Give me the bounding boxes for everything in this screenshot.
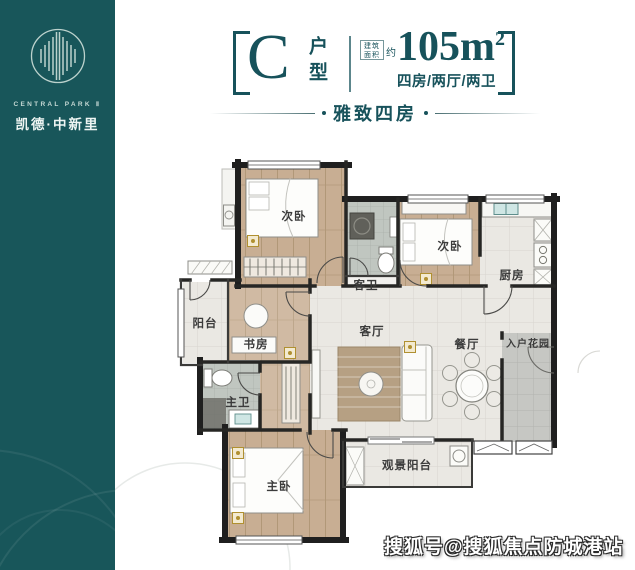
shower-master-bath [201, 398, 226, 428]
room-spec-label: 四房/两厅/两卫 [397, 70, 496, 91]
dressing-closet [282, 363, 300, 423]
subtitle-text: 雅致四房 [333, 100, 417, 126]
brand-logo [0, 26, 115, 91]
label-master-bedroom: 主卧 [267, 479, 292, 493]
unit-letter: C [247, 25, 290, 89]
living-rug [338, 347, 400, 421]
unit-type-label: 户型 [303, 36, 330, 88]
subtitle-line-left [210, 113, 315, 114]
label-dining: 餐厅 [454, 337, 480, 351]
floorplan-poster: CENTRAL PARK Ⅱ 凯德·中新里 C 户型 建筑面积 约 105m2 … [0, 0, 635, 570]
vanity-master-bath [229, 410, 259, 428]
brand-name-en: CENTRAL PARK Ⅱ [0, 100, 115, 108]
watermark-text: 搜狐号@搜狐焦点防城港站 [384, 532, 624, 559]
tv-bench [312, 350, 320, 418]
dining-window-row [474, 441, 552, 454]
washer-guest-bath [350, 213, 374, 239]
label-master-bath: 主卫 [226, 395, 251, 409]
brand-name-cn: 凯德·中新里 [0, 113, 115, 133]
label-bedroom-top-right: 次卧 [438, 239, 463, 253]
central-park-emblem-icon [28, 26, 88, 86]
toilet-master-bath [204, 369, 232, 387]
headline-divider [349, 36, 351, 92]
label-study: 书房 [244, 337, 269, 351]
subtitle-dot-right [424, 111, 428, 115]
headline-bracket-right [498, 31, 515, 95]
balcony-washer [450, 446, 468, 466]
subtitle-dot-left [322, 111, 326, 115]
ac-platform-left [222, 169, 236, 229]
sink-guest-bath [390, 217, 397, 237]
label-guest-bath: 客卫 [353, 278, 379, 292]
area-approx-label: 约 [386, 44, 396, 59]
label-kitchen: 厨房 [500, 268, 525, 282]
toilet-guest-bath [378, 247, 394, 273]
planter-ledge [188, 261, 232, 274]
sofa [402, 345, 432, 421]
area-value: 105m2 [397, 26, 505, 68]
label-balcony-side: 阳台 [193, 316, 218, 330]
sidebar-circle-decor [0, 340, 115, 570]
label-bedroom-top-left: 次卧 [282, 209, 307, 223]
area-number: 105m [397, 24, 495, 70]
label-view-balcony: 观景阳台 [382, 458, 432, 472]
balcony-slider-door [368, 437, 434, 444]
floorplan-drawing: 次卧 客卫 次卧 厨房 阳台 书房 客厅 餐厅 入户花园 主卫 主卧 观景阳台 [150, 155, 635, 545]
area-note-box: 建筑面积 [360, 40, 384, 60]
wardrobe-top-left [244, 257, 306, 277]
brand-sidebar: CENTRAL PARK Ⅱ 凯德·中新里 [0, 0, 115, 570]
subtitle-line-right [435, 113, 540, 114]
subtitle-row: 雅致四房 [115, 100, 635, 126]
label-entry-garden: 入户花园 [506, 337, 550, 350]
label-living: 客厅 [359, 324, 385, 338]
balcony-cabinet [346, 447, 364, 485]
bed-top-left [246, 179, 318, 237]
